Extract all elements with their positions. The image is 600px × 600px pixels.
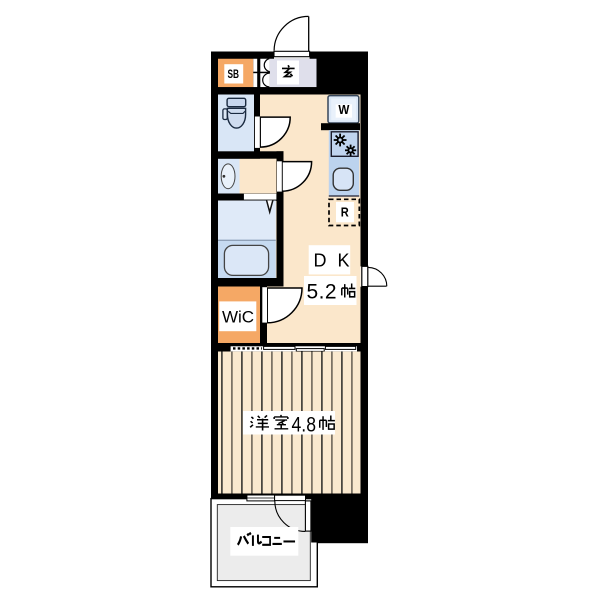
svg-text:W: W (338, 103, 349, 117)
svg-text:WiC: WiC (222, 308, 254, 327)
svg-text:D K: D K (313, 251, 352, 271)
svg-text:4.8: 4.8 (292, 414, 317, 437)
svg-text:R: R (341, 206, 349, 220)
svg-text:5.2: 5.2 (307, 281, 337, 304)
svg-text:SB: SB (227, 67, 239, 81)
